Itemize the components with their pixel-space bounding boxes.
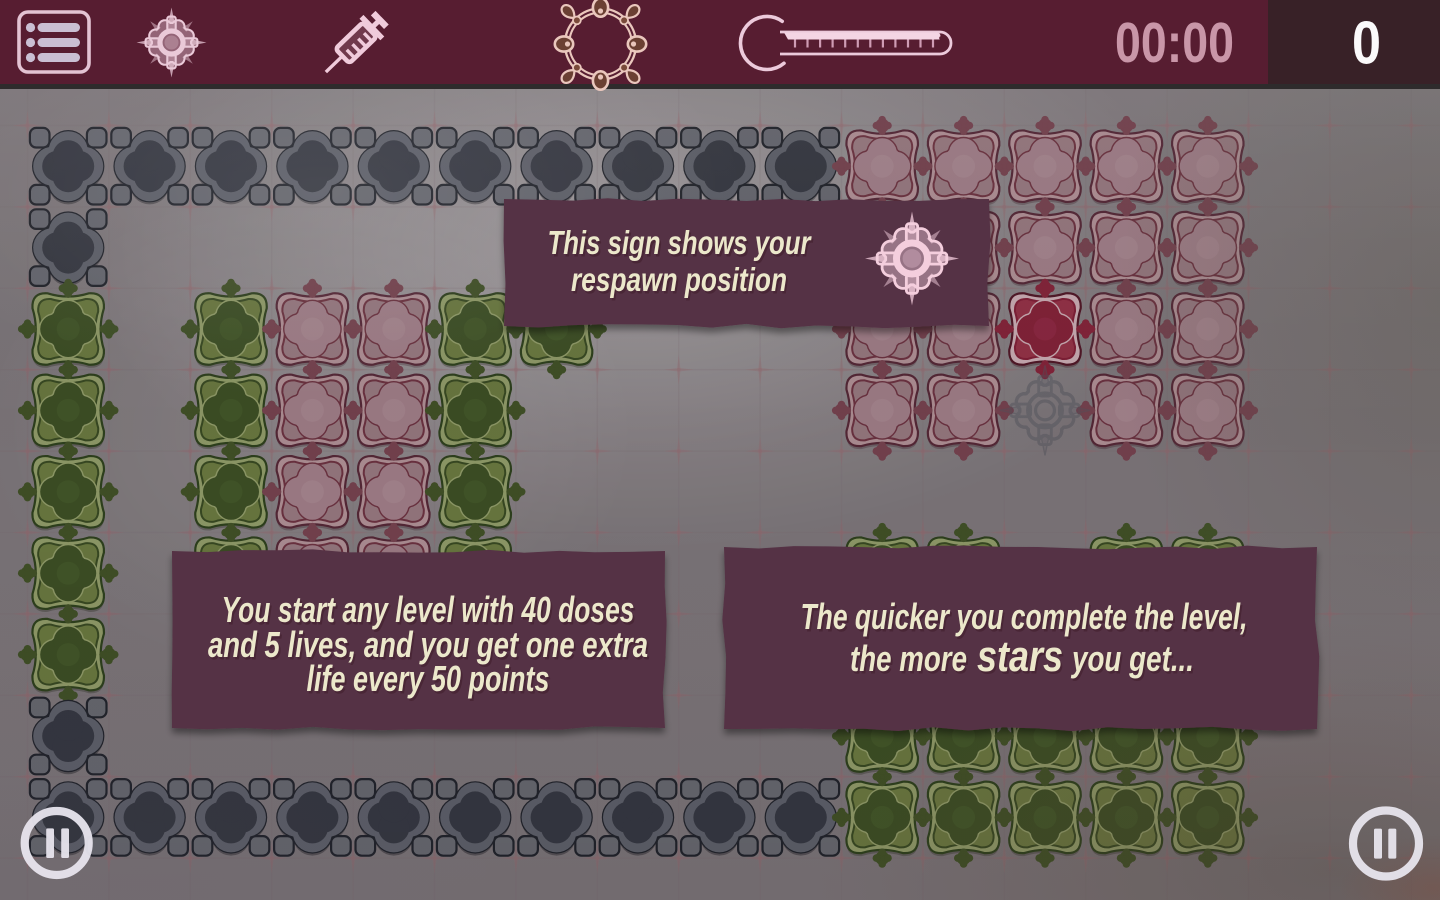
svg-text:The quicker you complete the l: The quicker you complete the level, bbox=[801, 596, 1248, 637]
svg-text:This sign shows your: This sign shows your bbox=[548, 225, 813, 262]
svg-text:0: 0 bbox=[1352, 10, 1381, 77]
svg-text:respawn position: respawn position bbox=[571, 262, 787, 299]
svg-text:you get...: you get... bbox=[1070, 638, 1194, 679]
svg-text:stars: stars bbox=[977, 632, 1063, 681]
svg-text:the more: the more bbox=[850, 638, 967, 679]
svg-text:life every 50 points: life every 50 points bbox=[307, 658, 550, 699]
svg-text:00:00: 00:00 bbox=[1115, 11, 1234, 75]
